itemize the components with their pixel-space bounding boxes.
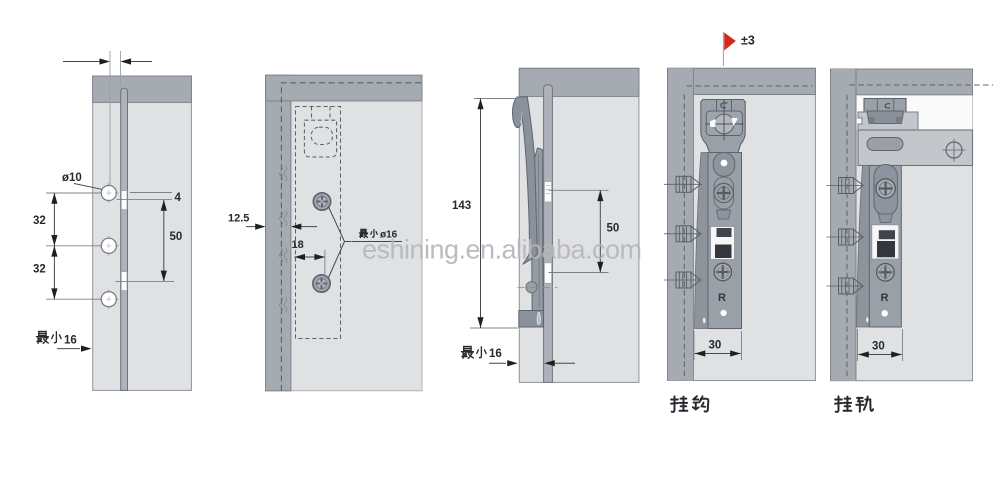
svg-text:143: 143 <box>452 200 471 212</box>
svg-text:16: 16 <box>64 335 77 347</box>
svg-text:4: 4 <box>175 192 182 204</box>
svg-text:R: R <box>718 292 726 304</box>
svg-text:eshining.en.alibaba.com: eshining.en.alibaba.com <box>362 235 642 265</box>
svg-text:32: 32 <box>33 215 46 227</box>
svg-text:12.5: 12.5 <box>228 213 249 225</box>
svg-text:±3: ±3 <box>741 34 755 48</box>
svg-text:16: 16 <box>489 348 502 360</box>
svg-text:30: 30 <box>872 341 885 353</box>
svg-text:32: 32 <box>33 264 46 276</box>
svg-text:50: 50 <box>170 231 183 243</box>
svg-text:50: 50 <box>607 223 620 235</box>
svg-text:18: 18 <box>292 239 304 251</box>
svg-text:ø10: ø10 <box>62 172 82 184</box>
svg-text:R: R <box>881 292 889 304</box>
svg-text:30: 30 <box>709 340 722 352</box>
